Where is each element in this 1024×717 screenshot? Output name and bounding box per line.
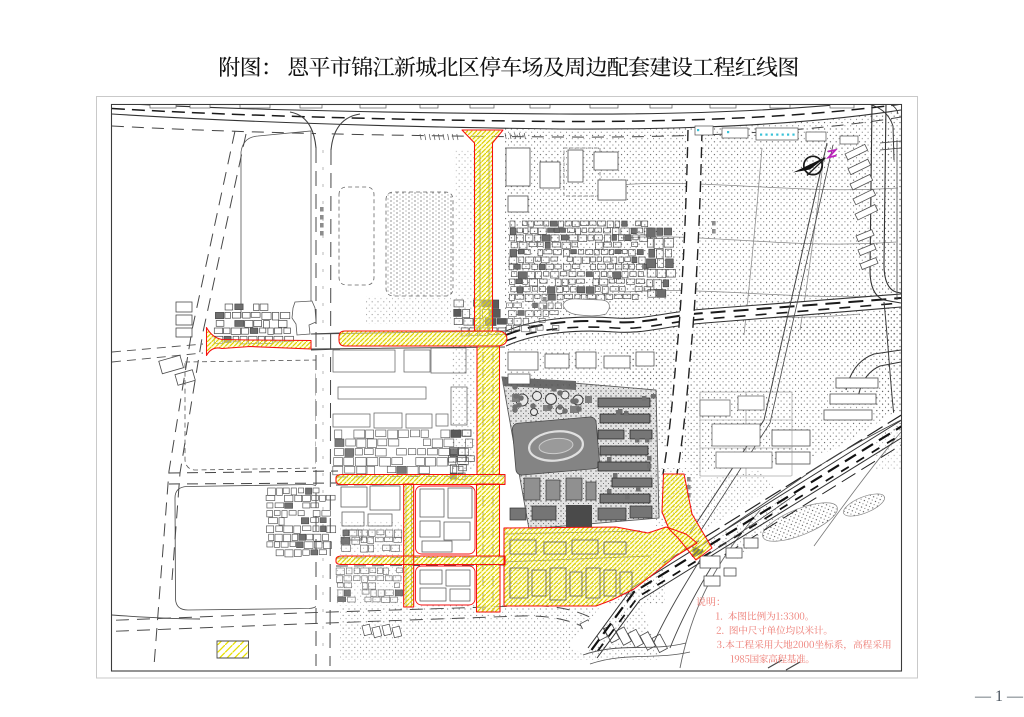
svg-text:— 1 —: — 1 — [974, 688, 1024, 705]
